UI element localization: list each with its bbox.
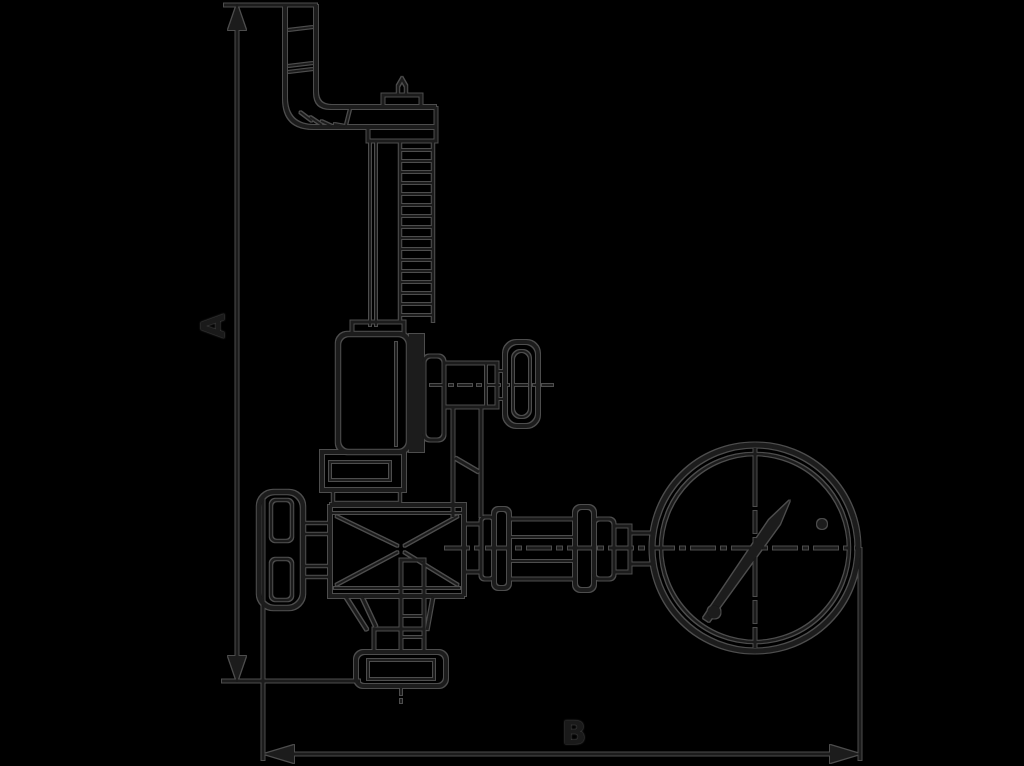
flange-plate (356, 652, 446, 686)
down-pipe (453, 407, 481, 517)
outlet-neck (374, 629, 424, 652)
screw-tip (398, 79, 406, 95)
dimension-b-label: B (562, 717, 586, 749)
test-valve-knob (424, 342, 553, 440)
dim-a-arrow-up-icon (228, 4, 246, 30)
drawing-svg (0, 0, 1024, 766)
outlet-passage (401, 560, 424, 652)
dim-b-arrow-left-icon (264, 745, 294, 763)
mounting-bracket (285, 5, 436, 127)
handwheel (259, 492, 330, 608)
dim-a-arrow-down-icon (228, 656, 246, 682)
handwheel-stem (303, 523, 330, 534)
tap-flange (424, 356, 444, 440)
outlet-flange (346, 560, 446, 703)
adjusting-screw-spring (368, 79, 436, 326)
spring-column (400, 141, 433, 322)
bonnet-flange (322, 452, 404, 503)
valve-seat-lines (336, 516, 458, 585)
gauge-pin-left (708, 606, 721, 619)
gauge-needle (703, 500, 790, 622)
handwheel-rim (259, 492, 303, 608)
guide-rod (370, 141, 376, 326)
spring-coils (400, 150, 433, 315)
gauge-pin-right (817, 519, 827, 529)
technical-drawing-canvas: A B (0, 0, 1024, 766)
dimension-a-label: A (197, 314, 229, 339)
valve-body (330, 505, 464, 596)
yoke-top-plate (368, 127, 436, 141)
spring-housing (338, 322, 481, 517)
pilot-column (409, 334, 424, 452)
dim-b-arrow-right-icon (830, 745, 860, 763)
housing-shell (338, 334, 409, 452)
